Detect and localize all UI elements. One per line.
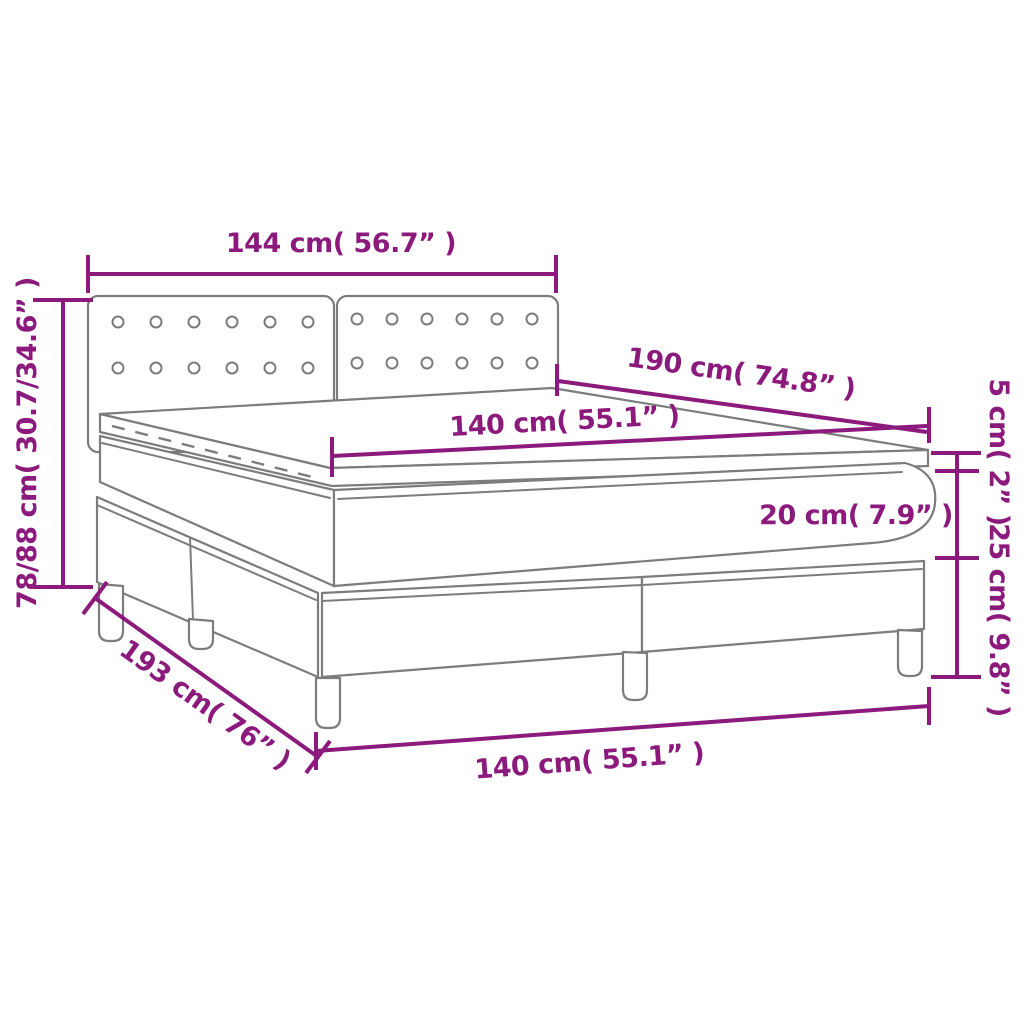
bed-leg	[623, 652, 647, 700]
headboard-button	[265, 317, 276, 328]
dim-bed-height-label: 78/88 cm( 30.7/34.6” )	[12, 277, 43, 609]
dim-topper-height-label: 5 cm( 2” )	[983, 378, 1014, 525]
headboard-button	[422, 358, 433, 369]
headboard-button	[151, 317, 162, 328]
bed-leg	[189, 619, 213, 649]
headboard-button	[527, 358, 538, 369]
headboard-button	[352, 314, 363, 325]
dim-height-stack: 5 cm( 2” ) 25 cm( 9.8” )	[931, 378, 1014, 717]
headboard-button	[151, 363, 162, 374]
headboard-button	[113, 317, 124, 328]
headboard-button	[387, 314, 398, 325]
bed-leg	[99, 584, 123, 641]
dim-mattress-height-label: 20 cm( 7.9” )	[759, 500, 953, 531]
headboard-button	[189, 363, 200, 374]
diagram-canvas: 144 cm( 56.7” ) 78/88 cm( 30.7/34.6” ) 1…	[0, 0, 1024, 1024]
headboard-button	[352, 358, 363, 369]
headboard-button	[527, 314, 538, 325]
headboard-button	[227, 317, 238, 328]
headboard-button	[422, 314, 433, 325]
headboard-button	[492, 314, 503, 325]
dim-bed-height: 78/88 cm( 30.7/34.6” )	[12, 277, 93, 609]
headboard-button	[387, 358, 398, 369]
headboard-button	[265, 363, 276, 374]
bed-leg	[898, 630, 922, 676]
headboard-button	[492, 358, 503, 369]
headboard-button	[457, 358, 468, 369]
bed-dimension-diagram: 144 cm( 56.7” ) 78/88 cm( 30.7/34.6” ) 1…	[0, 0, 1024, 1024]
headboard-button	[303, 317, 314, 328]
dim-headboard-width: 144 cm( 56.7” )	[88, 228, 556, 293]
headboard-button	[189, 317, 200, 328]
dim-headboard-width-label: 144 cm( 56.7” )	[226, 228, 456, 259]
headboard-button	[113, 363, 124, 374]
dim-base-height-label: 25 cm( 9.8” )	[983, 523, 1014, 717]
headboard-button	[457, 314, 468, 325]
bed-leg	[316, 678, 340, 728]
base-right-face	[642, 561, 924, 652]
dim-base-width: 140 cm( 55.1” )	[316, 687, 929, 786]
headboard-button	[303, 363, 314, 374]
dim-base-width-label: 140 cm( 55.1” )	[473, 737, 705, 785]
headboard-button	[227, 363, 238, 374]
